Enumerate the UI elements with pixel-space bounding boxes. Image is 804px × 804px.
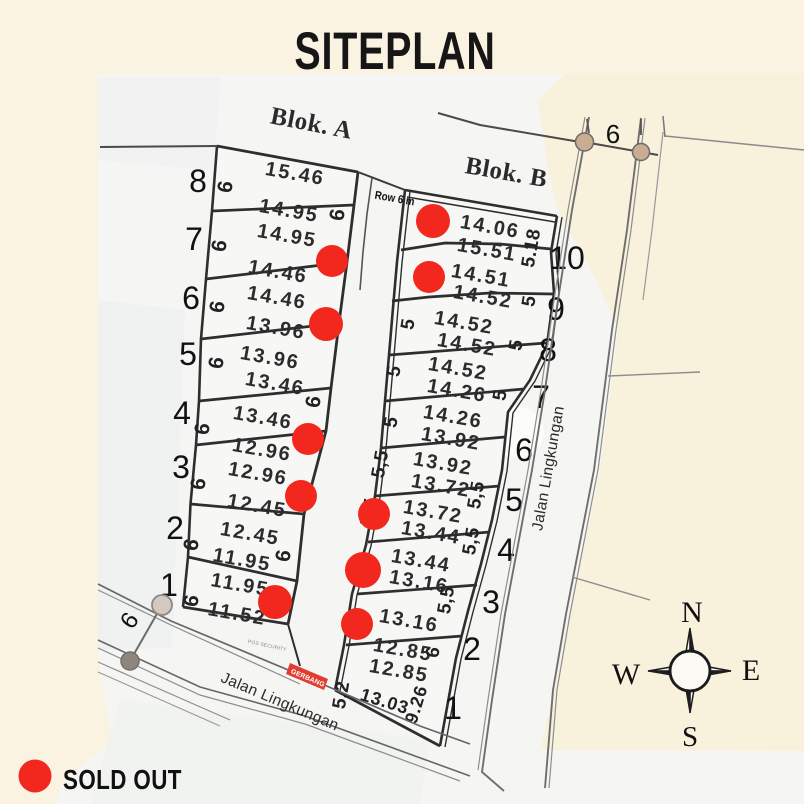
svg-text:S: S [682, 721, 698, 753]
svg-text:8: 8 [189, 163, 207, 199]
svg-text:6: 6 [182, 280, 200, 316]
svg-text:6: 6 [515, 432, 533, 468]
svg-text:3: 3 [482, 584, 500, 620]
svg-text:6: 6 [606, 119, 620, 149]
svg-text:N: N [681, 596, 703, 629]
svg-text:3: 3 [172, 449, 190, 485]
svg-text:5: 5 [179, 336, 197, 372]
svg-text:2: 2 [463, 631, 481, 667]
svg-text:7: 7 [185, 221, 203, 257]
svg-text:2: 2 [166, 510, 184, 546]
svg-text:SOLD OUT: SOLD OUT [63, 765, 182, 796]
svg-text:E: E [742, 654, 760, 687]
svg-text:4: 4 [173, 395, 191, 431]
svg-text:4: 4 [497, 532, 515, 568]
svg-text:1: 1 [444, 690, 462, 726]
svg-text:W: W [612, 658, 641, 691]
svg-text:SITEPLAN: SITEPLAN [294, 21, 495, 80]
